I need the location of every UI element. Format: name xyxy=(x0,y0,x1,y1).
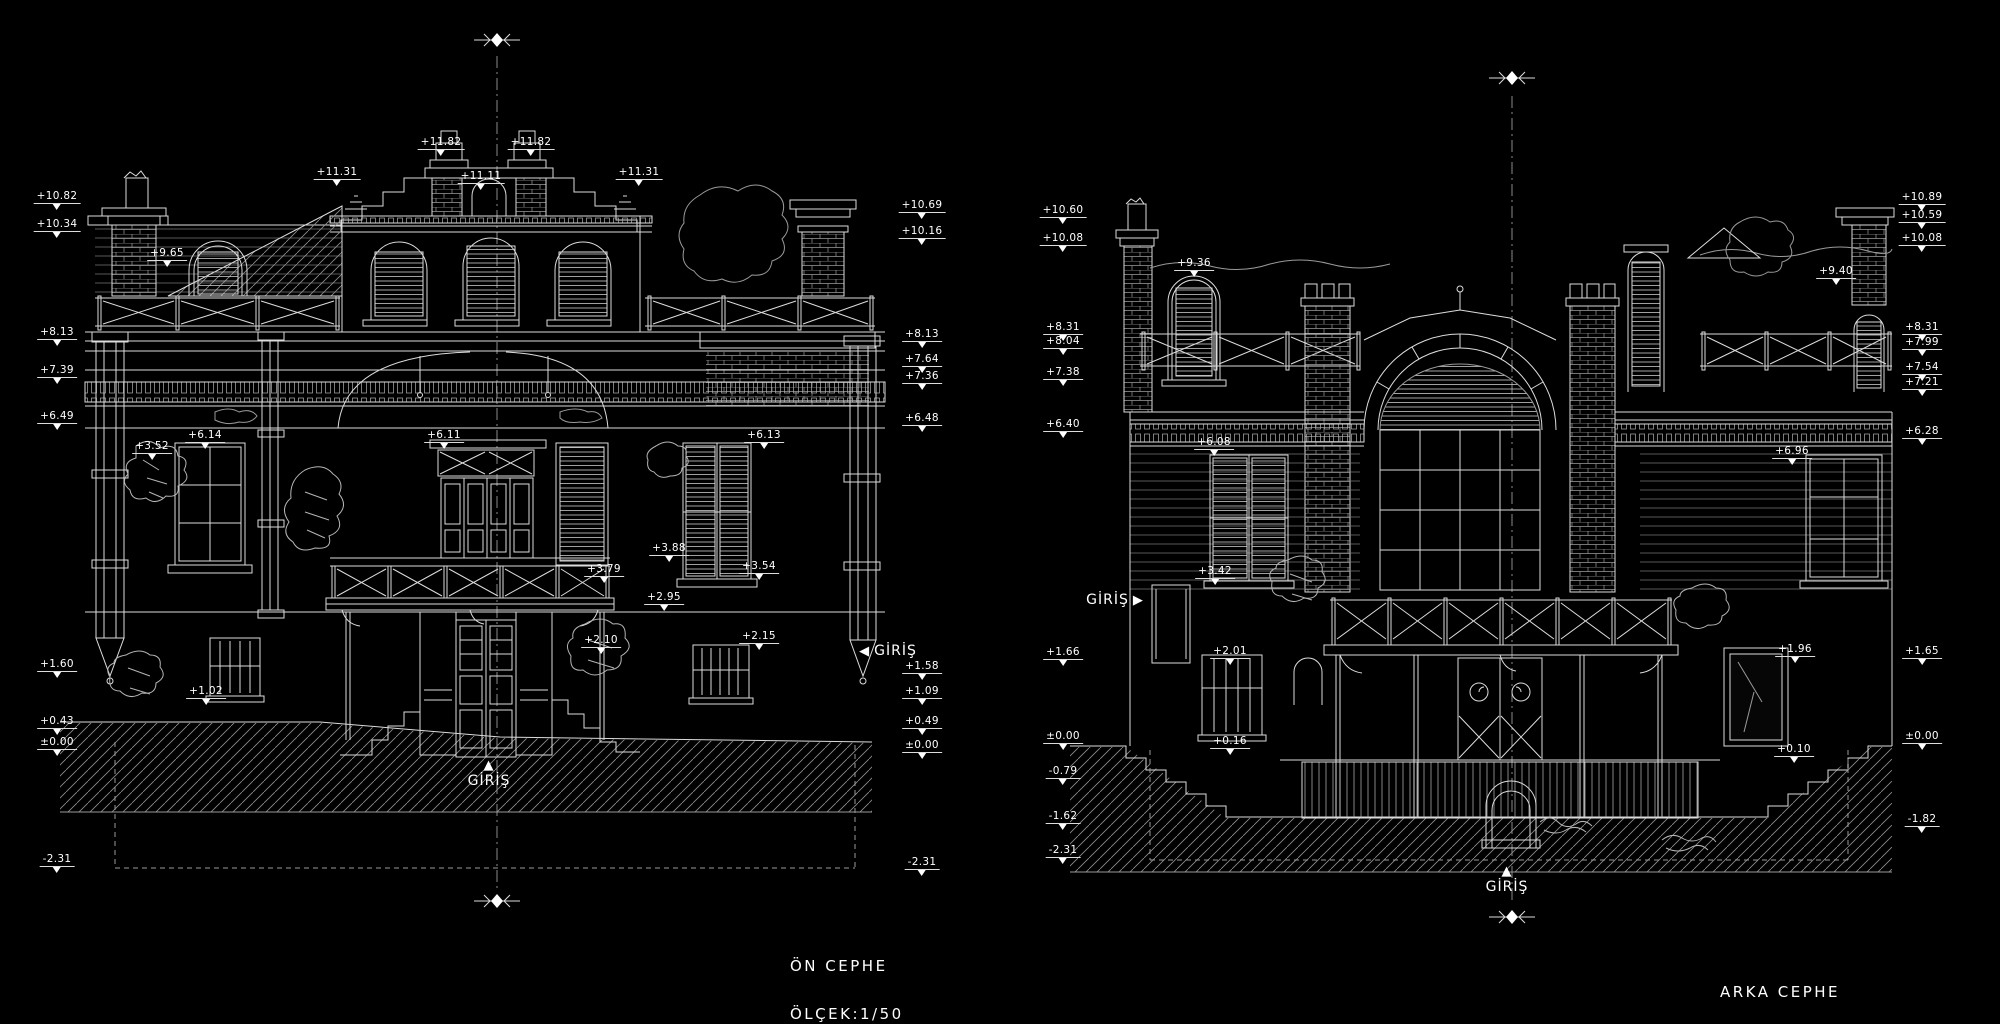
scale-text: ÖLÇEK:1/50 xyxy=(790,1002,904,1024)
section-marker-icon xyxy=(474,30,520,54)
rear-elevation-drawing xyxy=(1070,96,1894,902)
front-elevation-drawing xyxy=(60,56,885,890)
title-text: ÖN CEPHE xyxy=(790,954,904,978)
section-marker-icon xyxy=(474,891,520,915)
rear-elevation-title: ARKA CEPHE ÖLÇEK:1/50 xyxy=(1720,956,1840,1024)
section-marker-icon xyxy=(1489,907,1535,931)
front-elevation-title: ÖN CEPHE ÖLÇEK:1/50 xyxy=(790,930,904,1024)
title-text: ARKA CEPHE xyxy=(1720,980,1840,1004)
elevation-line-art xyxy=(0,0,2000,1024)
drawing-sheet: +10.82 +10.34 +8.13 +7.39 +6.49 +1.60 +0… xyxy=(0,0,2000,1024)
section-marker-icon xyxy=(1489,68,1535,92)
